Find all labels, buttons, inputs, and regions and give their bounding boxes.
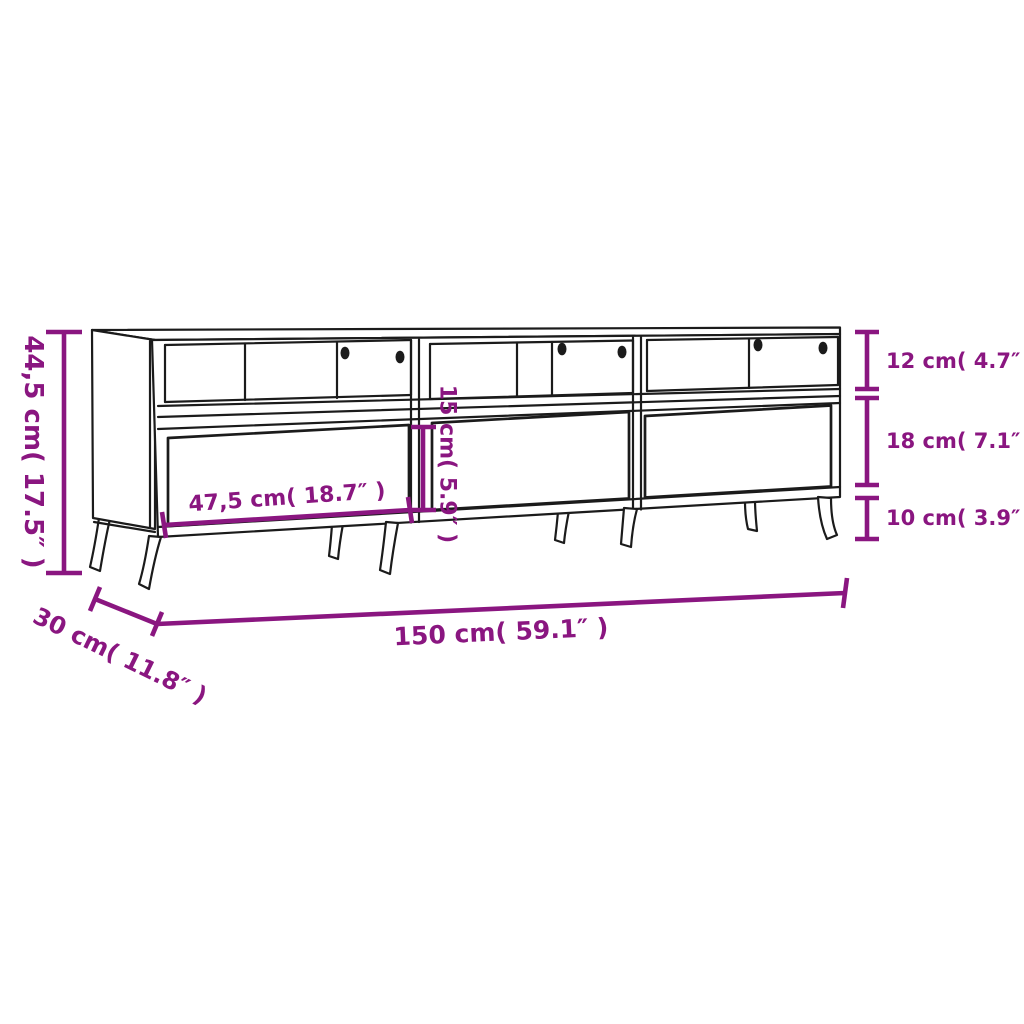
overall-height-label: 44,5 cm( 17.5″ ) bbox=[18, 335, 48, 568]
drawer-front-height-label: 18 cm( 7.1″ ) bbox=[886, 429, 1024, 453]
leg-height-label: 10 cm( 3.9″ ) bbox=[886, 506, 1024, 530]
drawer-front-right bbox=[645, 406, 831, 498]
diagram-canvas: 44,5 cm( 17.5″ ) 12 cm( 4.7″ ) 18 cm( 7.… bbox=[0, 0, 1024, 1024]
top-compartment-label: 12 cm( 4.7″ ) bbox=[886, 349, 1024, 373]
cable-hole bbox=[558, 343, 567, 356]
overall-depth-label: 30 cm( 11.8″ ) bbox=[29, 602, 212, 710]
leg-height-dimension: 10 cm( 3.9″ ) bbox=[855, 498, 1024, 539]
cable-hole bbox=[754, 339, 763, 352]
overall-depth-dimension: 30 cm( 11.8″ ) bbox=[29, 587, 212, 710]
cabinet-left-side-panel bbox=[92, 330, 155, 529]
top-compartment-dimension: 12 cm( 4.7″ ) bbox=[855, 332, 1024, 389]
cable-hole bbox=[396, 351, 405, 364]
overall-width-label: 150 cm( 59.1″ ) bbox=[393, 613, 609, 652]
cable-hole bbox=[819, 342, 828, 355]
tv-stand-dimension-diagram: 44,5 cm( 17.5″ ) 12 cm( 4.7″ ) 18 cm( 7.… bbox=[0, 0, 1024, 1024]
overall-width-dimension: 150 cm( 59.1″ ) bbox=[157, 578, 847, 651]
cable-hole bbox=[341, 347, 350, 360]
drawer-height-label: 15 cm( 5.9″ ) bbox=[435, 385, 460, 543]
overall-height-dimension: 44,5 cm( 17.5″ ) bbox=[18, 332, 82, 573]
cabinet-line-art bbox=[90, 328, 840, 590]
drawer-front-middle bbox=[432, 412, 629, 510]
drawer-front-height-dimension: 18 cm( 7.1″ ) bbox=[855, 398, 1024, 485]
cable-hole bbox=[618, 346, 627, 359]
